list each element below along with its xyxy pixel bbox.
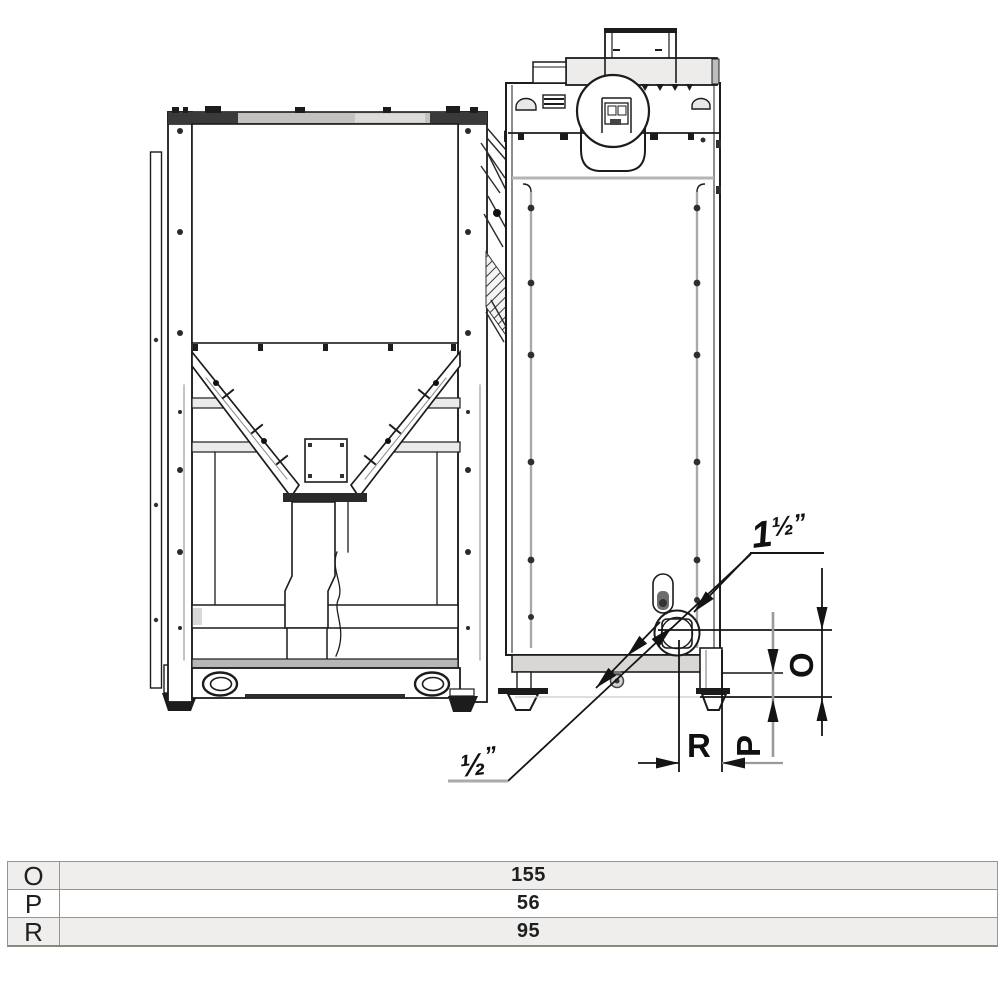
dim-letter-o: O [783,652,820,678]
right-dome-bolt [692,99,710,109]
right-foot-bracket [700,648,722,690]
hopper-left-rail [168,112,192,702]
table-row: P 56 [8,890,997,918]
table-row: O 155 [8,862,997,890]
dim-letter-r: R [687,727,711,764]
boiler-view [498,28,730,710]
pipe-size-label-small: ½” [457,742,499,784]
technical-drawing: R P O 1½” ½” [0,0,1000,855]
dim-letter-p: P [730,735,767,757]
screenshot-stage: R P O 1½” ½” O 155 P 56 R 95 [0,0,1000,1000]
dim-key-cell: P [8,890,60,917]
dimension-table: O 155 P 56 R 95 [7,861,998,947]
table-row: R 95 [8,918,997,945]
hopper-upper-panel [192,124,458,343]
hopper-right-rail [458,112,487,702]
pipe-size-label-large: 1½” [749,508,810,556]
boiler-top-cap [566,58,717,85]
dim-value-cell: 95 [60,918,997,945]
dim-key-cell: O [8,862,60,889]
hopper-view [151,106,488,712]
dim-value-cell: 56 [60,890,997,917]
left-dome-bolt [516,99,536,111]
dim-value-cell: 155 [60,862,997,889]
flue-outlet [605,30,676,59]
dim-key-cell: R [8,918,60,945]
vent-louver [543,95,565,108]
